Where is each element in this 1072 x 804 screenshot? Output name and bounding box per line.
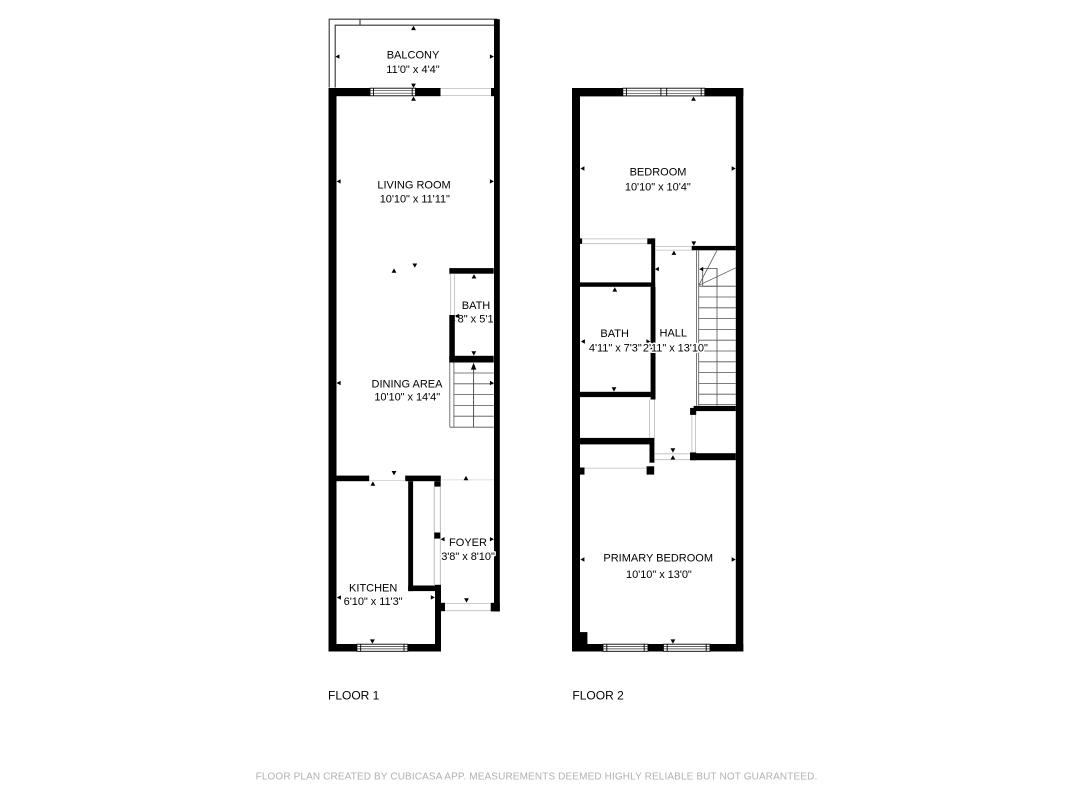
svg-text:4'11" x 7'3": 4'11" x 7'3" [589,343,642,355]
svg-text:10'10" x 11'11": 10'10" x 11'11" [380,193,450,205]
svg-text:FOYER: FOYER [449,537,487,549]
svg-text:10'10" x 10'4": 10'10" x 10'4" [625,182,691,194]
svg-text:KITCHEN: KITCHEN [349,582,397,594]
svg-text:FLOOR 1: FLOOR 1 [328,689,380,703]
svg-text:6'10" x 11'3": 6'10" x 11'3" [344,596,403,608]
svg-text:10'10" x 13'0": 10'10" x 13'0" [626,569,692,581]
svg-text:BALCONY: BALCONY [387,50,440,62]
svg-text:BEDROOM: BEDROOM [630,166,687,178]
svg-text:BATH: BATH [600,328,629,340]
svg-text:BATH: BATH [462,300,491,312]
svg-text:LIVING ROOM: LIVING ROOM [377,179,450,191]
svg-text:HALL: HALL [660,327,688,339]
svg-text:DINING AREA: DINING AREA [372,378,444,390]
svg-text:11'0" x 4'4": 11'0" x 4'4" [386,64,439,76]
svg-text:FLOOR PLAN CREATED BY CUBICASA: FLOOR PLAN CREATED BY CUBICASA APP. MEAS… [256,772,818,783]
svg-text:2'11" x 13'10": 2'11" x 13'10" [643,343,708,355]
svg-text:3'8" x 8'10": 3'8" x 8'10" [441,551,495,563]
svg-text:FLOOR 2: FLOOR 2 [572,689,624,703]
svg-text:PRIMARY BEDROOM: PRIMARY BEDROOM [603,553,713,565]
svg-text:10'10" x 14'4": 10'10" x 14'4" [374,391,440,403]
